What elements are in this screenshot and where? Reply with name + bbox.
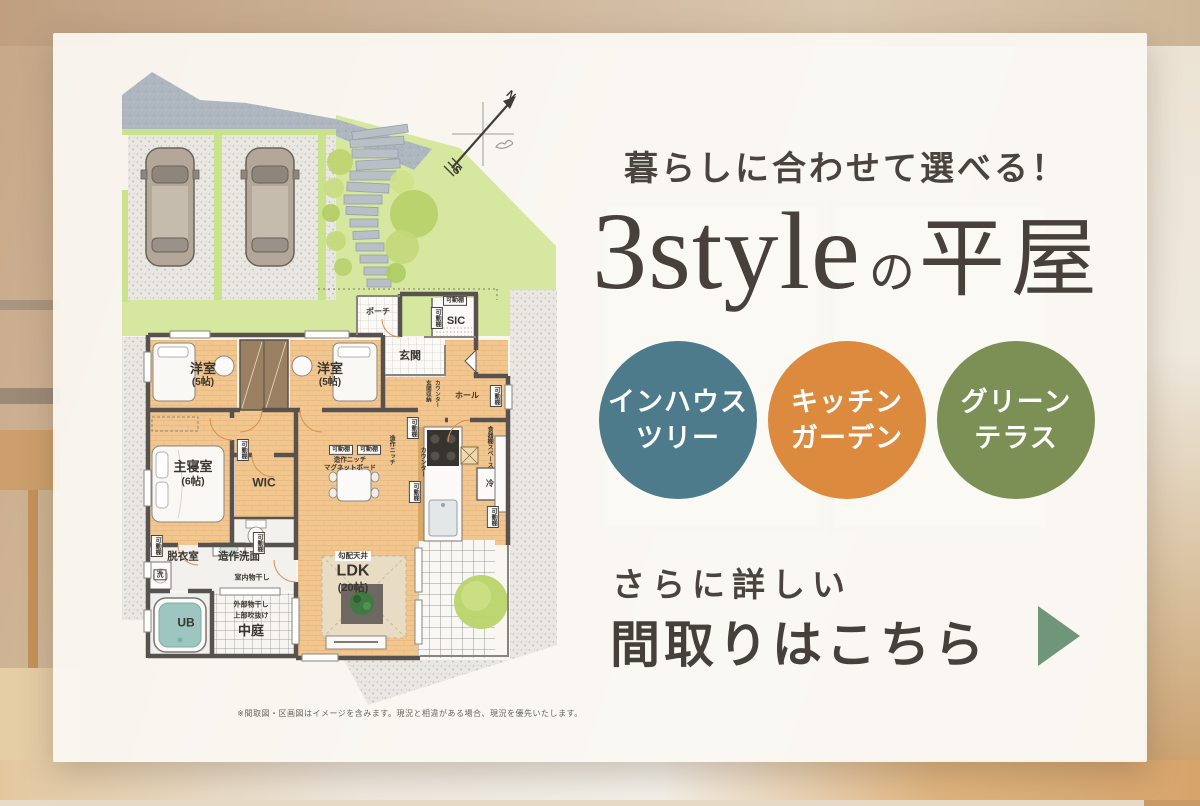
- style-circle: インハウスツリー: [599, 341, 757, 499]
- title-jp: 平屋: [919, 211, 1103, 307]
- style-circle: キッチンガーデン: [768, 341, 926, 499]
- style-circle: グリーンテラス: [937, 341, 1095, 499]
- cta-link[interactable]: 間取りはこちら: [610, 605, 988, 677]
- title-latin: 3style: [592, 190, 861, 312]
- style-circle-line: キッチン: [791, 384, 903, 420]
- headline: 暮らしに合わせて選べる！: [585, 141, 1107, 190]
- style-circle-line: テラス: [974, 420, 1057, 456]
- disclaimer-text: ※間取図・区画図はイメージを含みます。現況と相違がある場合、現況を優先いたします…: [175, 708, 645, 719]
- style-circles: インハウスツリーキッチンガーデングリーンテラス: [599, 341, 1095, 499]
- cta-arrow-icon[interactable]: [1038, 606, 1080, 666]
- cta-lead-text: さらに詳しい: [612, 558, 852, 606]
- style-circle-line: ガーデン: [791, 420, 903, 456]
- title-particle: の: [869, 247, 915, 298]
- style-circle-line: グリーン: [961, 384, 1072, 420]
- style-circle-line: ツリー: [636, 420, 720, 456]
- main-title: 3styleの平屋: [575, 188, 1120, 313]
- style-circle-line: インハウス: [608, 384, 748, 420]
